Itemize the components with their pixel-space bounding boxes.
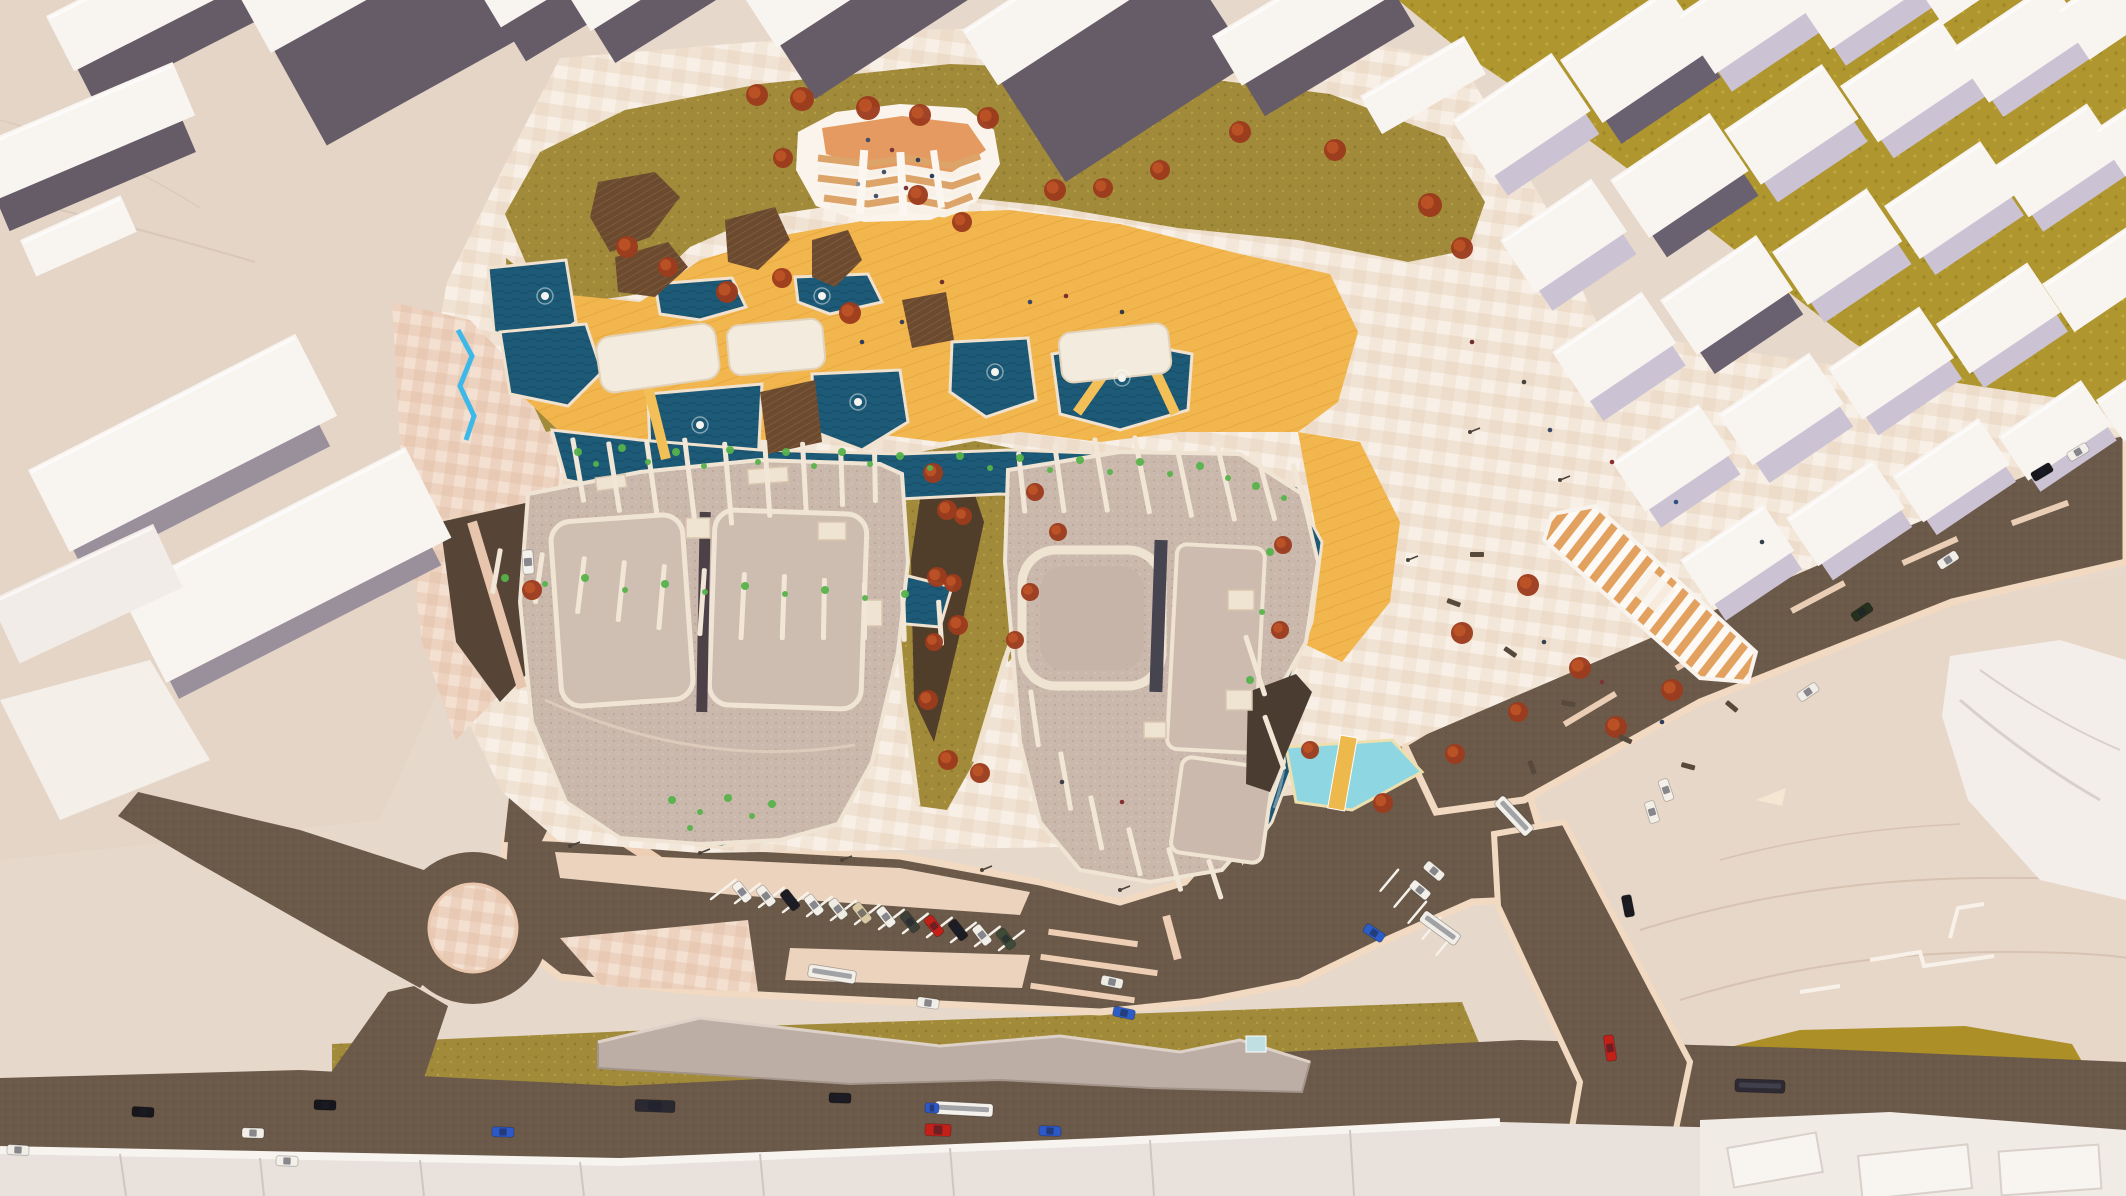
lamp-post [1468,430,1472,434]
tree-canopy-light [719,284,731,296]
tree-canopy-light [1303,743,1313,753]
car [314,1100,336,1111]
lily-pad [701,463,707,469]
tree-canopy-light [1375,795,1386,806]
lily-pad [987,465,993,471]
car [1039,1126,1061,1137]
lily-pad [782,591,788,597]
lily-pad [1266,548,1274,556]
lily-pad [593,461,599,467]
tree-canopy-light [1664,682,1676,694]
tree-canopy-light [939,502,950,513]
person [1064,294,1069,299]
lily-pad [821,586,829,594]
roof-panel [550,514,695,708]
rooftop-unit [818,522,846,540]
lamp-post [840,858,844,862]
car-windshield [1108,978,1117,986]
tree-canopy-light [940,752,951,763]
person [900,320,905,325]
lily-pad [622,587,628,593]
person [1060,780,1065,785]
service-van [522,550,535,575]
lily-pad [896,452,904,460]
tree-canopy-light [1095,180,1106,191]
lamp-post [1406,558,1410,562]
rooftop-unit [1228,590,1254,610]
tree-canopy-light [950,617,961,628]
tree-canopy-light [1421,196,1434,209]
tree-canopy-light [1454,625,1466,637]
lily-pad [1246,676,1254,684]
bus [935,1101,994,1117]
tree-canopy-light [749,87,761,99]
tree-canopy-light [619,239,631,251]
lily-pad [501,574,509,582]
tree-canopy-light [1454,240,1466,252]
tree-canopy-light [972,765,983,776]
tree-canopy-light [980,110,992,122]
person [1610,460,1615,465]
person [860,340,865,345]
lily-pad [782,448,790,456]
tree-canopy-light [1327,142,1339,154]
corner-roof [1999,1145,2102,1196]
lily-pad [702,589,708,595]
lily-pad [618,444,626,452]
roundabout-island [429,884,517,972]
swan [991,368,999,376]
person [1548,428,1553,433]
lily-pad [1225,475,1231,481]
person [874,194,879,199]
car-windshield [321,1101,329,1108]
lily-pad [768,800,776,808]
lamp-post [980,868,984,872]
lily-pad [697,809,703,815]
person [882,170,887,175]
rooftop-unit [1226,690,1252,710]
tree-canopy-light [1276,538,1286,548]
lounger-deck [726,318,826,376]
lily-pad [927,465,933,471]
fin-wall [872,448,878,503]
lamp-post [1118,888,1122,892]
person [1028,300,1033,305]
tree-canopy-light [842,305,854,317]
glass-cube [1246,1036,1266,1052]
lamp-post [1558,478,1562,482]
car [242,1128,264,1139]
car [925,1124,951,1137]
lily-pad [1076,456,1084,464]
swan [818,292,826,300]
person [1542,640,1547,645]
swan [696,421,704,429]
car [276,1156,298,1167]
swan [541,292,549,300]
person [916,158,921,163]
tree-canopy-light [1510,704,1521,715]
tree-canopy-light [1028,485,1038,495]
person [866,138,871,143]
tree-canopy-light [1008,633,1018,643]
tree-canopy-light [1520,577,1532,589]
lily-pad [581,574,589,582]
lily-pad [1252,482,1260,490]
lily-pad [574,448,582,456]
car-windshield [929,1104,934,1111]
lily-pad [749,813,755,819]
lily-pad [542,581,548,587]
lily-pad [645,459,651,465]
tree-canopy-light [1273,623,1283,633]
car [132,1106,154,1117]
car [7,1144,29,1155]
tree-canopy-light [1447,746,1458,757]
tree-canopy-light [910,187,921,198]
lily-pad [741,582,749,590]
lily-pad [1107,469,1113,475]
person [1760,540,1765,545]
lamp-post [568,844,572,848]
lily-pad [1196,462,1204,470]
lily-pad [672,448,680,456]
lily-pad [1281,495,1287,501]
tree-canopy-light [1051,525,1061,535]
tree-canopy-light [946,576,956,586]
lily-pad [1167,471,1173,477]
person [904,186,909,191]
roof-ring-inner [1040,566,1144,670]
lily-pad [724,794,732,802]
lily-pad [668,796,676,804]
car-windshield [934,1125,943,1134]
car-windshield [283,1157,291,1164]
tree-canopy-light [927,635,937,645]
car-windshield [524,558,533,567]
fin-wall [862,582,867,640]
wood-deck [760,380,822,454]
person [1470,340,1475,345]
person [1120,310,1125,315]
tree-canopy-light [1608,719,1620,731]
bus [1735,1079,1785,1094]
lily-pad [687,825,693,831]
person [1674,500,1679,505]
person [1600,680,1605,685]
lily-pad [956,452,964,460]
tree-canopy-light [954,214,965,225]
person [1660,720,1665,725]
tree-canopy-light [660,259,671,270]
car-windshield [499,1128,507,1135]
car [829,1093,851,1104]
tree-canopy-light [1572,660,1584,672]
tree-canopy-light [1023,585,1033,595]
car-windshield [14,1146,22,1153]
swan [854,398,862,406]
rooftop-unit [686,518,710,538]
car-windshield [1606,1043,1614,1053]
site-render-svg [0,0,2126,1196]
lily-pad [1136,458,1144,466]
swan [1118,374,1126,382]
car [492,1127,514,1138]
tree-canopy-light [920,692,931,703]
tree-canopy-light [912,107,924,119]
person [1522,380,1527,385]
car-windshield [924,999,932,1007]
lily-pad [1047,467,1053,473]
car-windshield [648,1101,662,1110]
lily-pad [867,461,873,467]
lily-pad [811,463,817,469]
car-windshield [1624,902,1632,911]
lily-pad [661,580,669,588]
lily-pad [862,595,868,601]
amphitheater [796,104,1000,222]
tree-canopy-light [775,150,786,161]
tree-canopy-light [956,509,966,519]
lily-pad [838,448,846,456]
car-windshield [1046,1127,1054,1134]
person [930,174,935,179]
lily-pad [726,446,734,454]
scene-root [0,0,2126,1196]
lily-pad [901,590,909,598]
tree-canopy-light [859,99,872,112]
tree-canopy-light [524,582,535,593]
person [856,182,861,187]
car-windshield [249,1129,257,1136]
person [1120,800,1125,805]
rooftop-unit [1144,722,1166,738]
lily-pad [1259,609,1265,615]
tree-canopy-light [1152,162,1163,173]
tree-canopy-light [1047,182,1059,194]
lamp-post [698,851,702,855]
car [925,1103,940,1114]
tree-canopy-light [1232,124,1244,136]
tree-canopy-light [929,569,940,580]
car [635,1099,675,1112]
lily-pad [1016,454,1024,462]
lily-pad [755,459,761,465]
person [940,280,945,285]
tree-canopy-light [793,90,806,103]
bench [1470,552,1484,557]
tree-canopy-light [774,270,785,281]
person [890,148,895,153]
car-windshield [139,1108,147,1115]
car-windshield [1120,1009,1129,1017]
car-windshield [836,1094,844,1101]
